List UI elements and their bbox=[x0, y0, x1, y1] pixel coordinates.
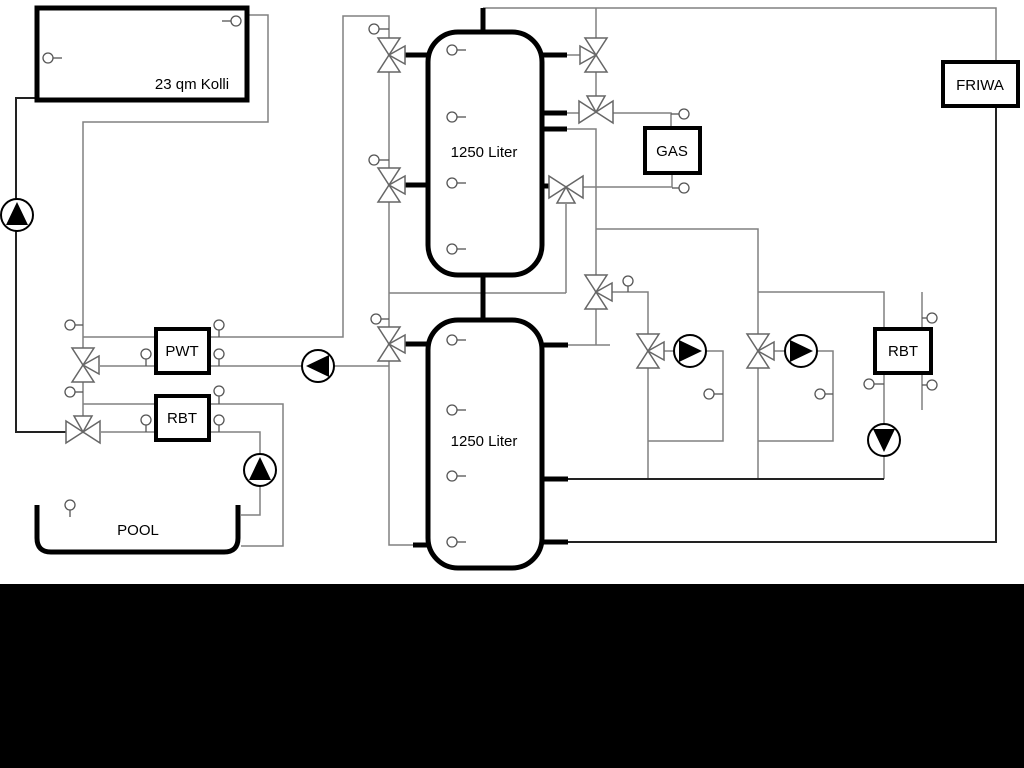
pwt-label: PWT bbox=[165, 343, 198, 360]
rbt-right-pump-icon bbox=[868, 424, 900, 456]
friwa-label: FRIWA bbox=[956, 77, 1004, 94]
rbt-left-unit: RBT bbox=[156, 396, 209, 440]
bottom-black-bar bbox=[0, 584, 1024, 768]
lower-tank-label: 1250 Liter bbox=[451, 433, 518, 450]
upper-tank-label: 1250 Liter bbox=[451, 144, 518, 161]
rbt-right-unit: RBT bbox=[875, 329, 931, 373]
heat-exchanger-pump-icon bbox=[302, 350, 334, 382]
rbt-right-label: RBT bbox=[888, 343, 918, 360]
friwa-station: FRIWA bbox=[943, 62, 1018, 106]
pool-pump-icon bbox=[244, 454, 276, 486]
gas-boiler: GAS bbox=[645, 128, 700, 173]
pwt-heat-exchanger: PWT bbox=[156, 329, 209, 373]
heating-circuit2-pump-icon bbox=[785, 335, 817, 367]
collector-label: 23 qm Kolli bbox=[155, 76, 229, 93]
hydraulic-schematic: 23 qm Kolli 1250 Liter 1250 Liter PWT RB… bbox=[0, 0, 1024, 768]
solar-pump-icon bbox=[1, 199, 33, 231]
gas-label: GAS bbox=[656, 143, 688, 160]
buffer-tank-lower: 1250 Liter bbox=[428, 320, 542, 568]
solar-collector: 23 qm Kolli bbox=[37, 8, 247, 100]
schematic-canvas: 23 qm Kolli 1250 Liter 1250 Liter PWT RB… bbox=[0, 0, 1024, 768]
buffer-tank-upper: 1250 Liter bbox=[428, 32, 542, 275]
pool-label: POOL bbox=[117, 522, 159, 539]
rbt-left-label: RBT bbox=[167, 410, 197, 427]
heating-circuit1-pump-icon bbox=[674, 335, 706, 367]
